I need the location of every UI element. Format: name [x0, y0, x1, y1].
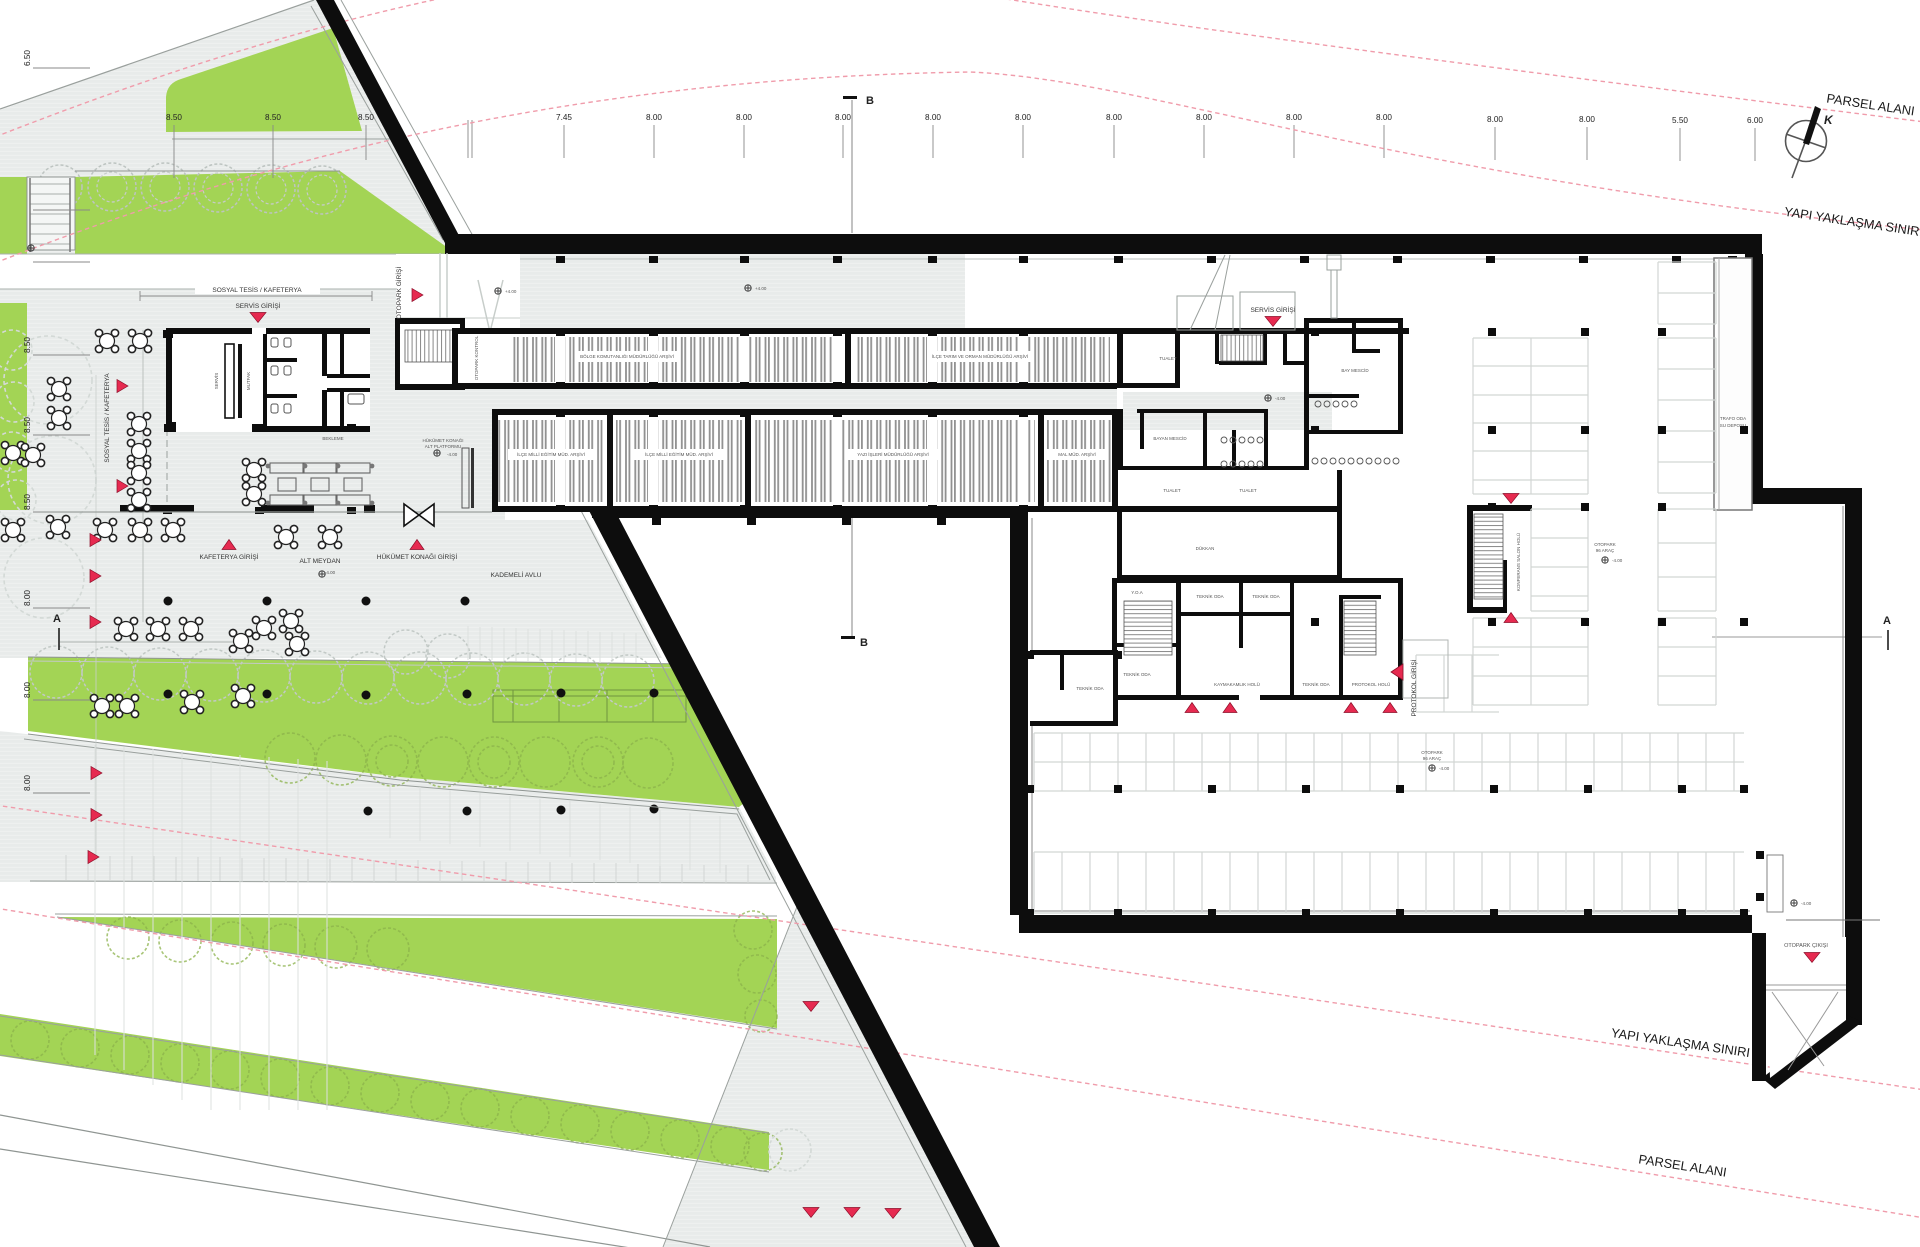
svg-text:HÜKÜMET KONAĞI: HÜKÜMET KONAĞI: [423, 437, 464, 443]
svg-text:6.00: 6.00: [1747, 116, 1763, 125]
svg-text:8.50: 8.50: [23, 417, 32, 433]
svg-text:-4.00: -4.00: [325, 570, 336, 575]
svg-text:MAL MÜD. ARŞİVİ: MAL MÜD. ARŞİVİ: [1058, 451, 1096, 457]
svg-text:BÖLGE KOMUTANLIĞI MÜDÜRLÜĞÜ AR: BÖLGE KOMUTANLIĞI MÜDÜRLÜĞÜ ARŞİVİ: [580, 353, 674, 359]
svg-text:TRAFO ODA: TRAFO ODA: [1720, 416, 1746, 421]
svg-text:PROTOKOL GİRİŞİ: PROTOKOL GİRİŞİ: [1409, 659, 1418, 716]
svg-text:B: B: [860, 637, 868, 649]
svg-text:TUALET: TUALET: [1239, 488, 1257, 493]
svg-text:ALT MEYDAN: ALT MEYDAN: [300, 558, 341, 565]
svg-text:8.00: 8.00: [1286, 113, 1302, 122]
svg-text:8.00: 8.00: [23, 682, 32, 698]
svg-text:YAZI İŞLERİ MÜDÜRLÜĞÜ ARŞİVİ: YAZI İŞLERİ MÜDÜRLÜĞÜ ARŞİVİ: [857, 451, 928, 457]
svg-text:TEKNİK ODA: TEKNİK ODA: [1252, 593, 1279, 599]
svg-text:TUALET: TUALET: [1163, 488, 1181, 493]
svg-text:5.50: 5.50: [1672, 116, 1688, 125]
svg-text:8.00: 8.00: [835, 113, 851, 122]
svg-text:OTOPARK: OTOPARK: [1594, 542, 1616, 547]
svg-text:6.50: 6.50: [23, 50, 32, 66]
svg-text:8.00: 8.00: [23, 775, 32, 791]
svg-text:8.00: 8.00: [1196, 113, 1212, 122]
svg-text:TEKNİK ODA: TEKNİK ODA: [1076, 685, 1103, 691]
svg-text:KADEMELİ AVLU: KADEMELİ AVLU: [491, 570, 542, 579]
svg-text:8.00: 8.00: [925, 113, 941, 122]
svg-text:8.00: 8.00: [1376, 113, 1392, 122]
svg-text:OTOPARK KONTROL: OTOPARK KONTROL: [474, 335, 479, 380]
svg-text:+4.00: +4.00: [505, 289, 517, 294]
svg-text:-4.00: -4.00: [447, 452, 458, 457]
svg-text:BAYAN MESCİD: BAYAN MESCİD: [1153, 435, 1187, 441]
svg-text:SOSYAL TESİS / KAFETERYA: SOSYAL TESİS / KAFETERYA: [212, 285, 302, 294]
svg-text:SERVİS GİRİŞİ: SERVİS GİRİŞİ: [1250, 305, 1295, 314]
svg-text:8.00: 8.00: [1579, 115, 1595, 124]
svg-text:İLÇE MİLLİ EĞİTİM MÜD. ARŞİVİ: İLÇE MİLLİ EĞİTİM MÜD. ARŞİVİ: [645, 451, 713, 457]
svg-text:PROTOKOL HOLÜ: PROTOKOL HOLÜ: [1352, 681, 1391, 687]
svg-text:-4.00: -4.00: [1612, 558, 1623, 563]
svg-text:Y.O.A: Y.O.A: [1131, 590, 1142, 595]
svg-text:TEKNİK ODA: TEKNİK ODA: [1196, 593, 1223, 599]
svg-text:SERVİS GİRİŞİ: SERVİS GİRİŞİ: [235, 301, 280, 310]
svg-text:İLÇE MİLLİ EĞİTİM MÜD. ARŞİVİ: İLÇE MİLLİ EĞİTİM MÜD. ARŞİVİ: [517, 451, 585, 457]
svg-text:DÜKKAN: DÜKKAN: [1196, 545, 1215, 551]
svg-text:OTOPARK ÇIKIŞI: OTOPARK ÇIKIŞI: [1784, 943, 1828, 949]
svg-text:-4.00: -4.00: [1801, 901, 1812, 906]
svg-text:8.50: 8.50: [265, 113, 281, 122]
svg-text:OTOPARK: OTOPARK: [1421, 750, 1443, 755]
svg-text:8.00: 8.00: [736, 113, 752, 122]
svg-text:8.00: 8.00: [1015, 113, 1031, 122]
svg-text:-4.00: -4.00: [1275, 396, 1286, 401]
svg-text:8.50: 8.50: [23, 494, 32, 510]
svg-text:BAY MESCİD: BAY MESCİD: [1341, 367, 1369, 373]
svg-text:TUALET: TUALET: [1159, 356, 1177, 361]
svg-text:+4.00: +4.00: [755, 286, 767, 291]
svg-text:8.00: 8.00: [646, 113, 662, 122]
svg-text:TEKNİK ODA: TEKNİK ODA: [1302, 681, 1329, 687]
svg-text:MUTFAK: MUTFAK: [246, 372, 251, 390]
svg-text:KONFERANS SALON HOLÜ: KONFERANS SALON HOLÜ: [1515, 533, 1521, 591]
svg-text:KAFETERYA GİRİŞİ: KAFETERYA GİRİŞİ: [200, 552, 259, 561]
svg-text:8.00: 8.00: [1487, 115, 1503, 124]
svg-text:7.45: 7.45: [556, 113, 572, 122]
svg-text:8.50: 8.50: [358, 113, 374, 122]
svg-text:A: A: [1883, 615, 1891, 627]
svg-text:96 ARAÇ: 96 ARAÇ: [1423, 756, 1442, 761]
svg-text:8.50: 8.50: [23, 337, 32, 353]
svg-text:SERVİS: SERVİS: [213, 373, 219, 389]
svg-text:HÜKÜMET KONAĞI GİRİŞİ: HÜKÜMET KONAĞI GİRİŞİ: [377, 552, 458, 561]
svg-text:İLÇE TARIM VE ORMAN MÜDÜRLÜĞÜ: İLÇE TARIM VE ORMAN MÜDÜRLÜĞÜ ARŞİVİ: [932, 353, 1028, 359]
svg-text:B: B: [866, 95, 874, 107]
svg-text:8.50: 8.50: [166, 113, 182, 122]
svg-text:A: A: [53, 613, 61, 625]
svg-text:8.00: 8.00: [1106, 113, 1122, 122]
svg-text:TEKNİK ODA: TEKNİK ODA: [1123, 671, 1150, 677]
svg-text:SOSYAL TESİS / KAFETERYA: SOSYAL TESİS / KAFETERYA: [102, 373, 111, 463]
svg-text:K: K: [1824, 113, 1834, 127]
svg-text:ALT PLATFORMU: ALT PLATFORMU: [425, 444, 462, 449]
svg-text:BEKLEME: BEKLEME: [322, 436, 343, 441]
svg-text:8.00: 8.00: [23, 590, 32, 606]
svg-text:OTOPARK GİRİŞİ: OTOPARK GİRİŞİ: [394, 267, 403, 320]
svg-text:KAYMAKAMLIK HOLÜ: KAYMAKAMLIK HOLÜ: [1214, 681, 1260, 687]
svg-text:96 ARAÇ: 96 ARAÇ: [1596, 548, 1615, 553]
svg-text:-4.00: -4.00: [1439, 766, 1450, 771]
